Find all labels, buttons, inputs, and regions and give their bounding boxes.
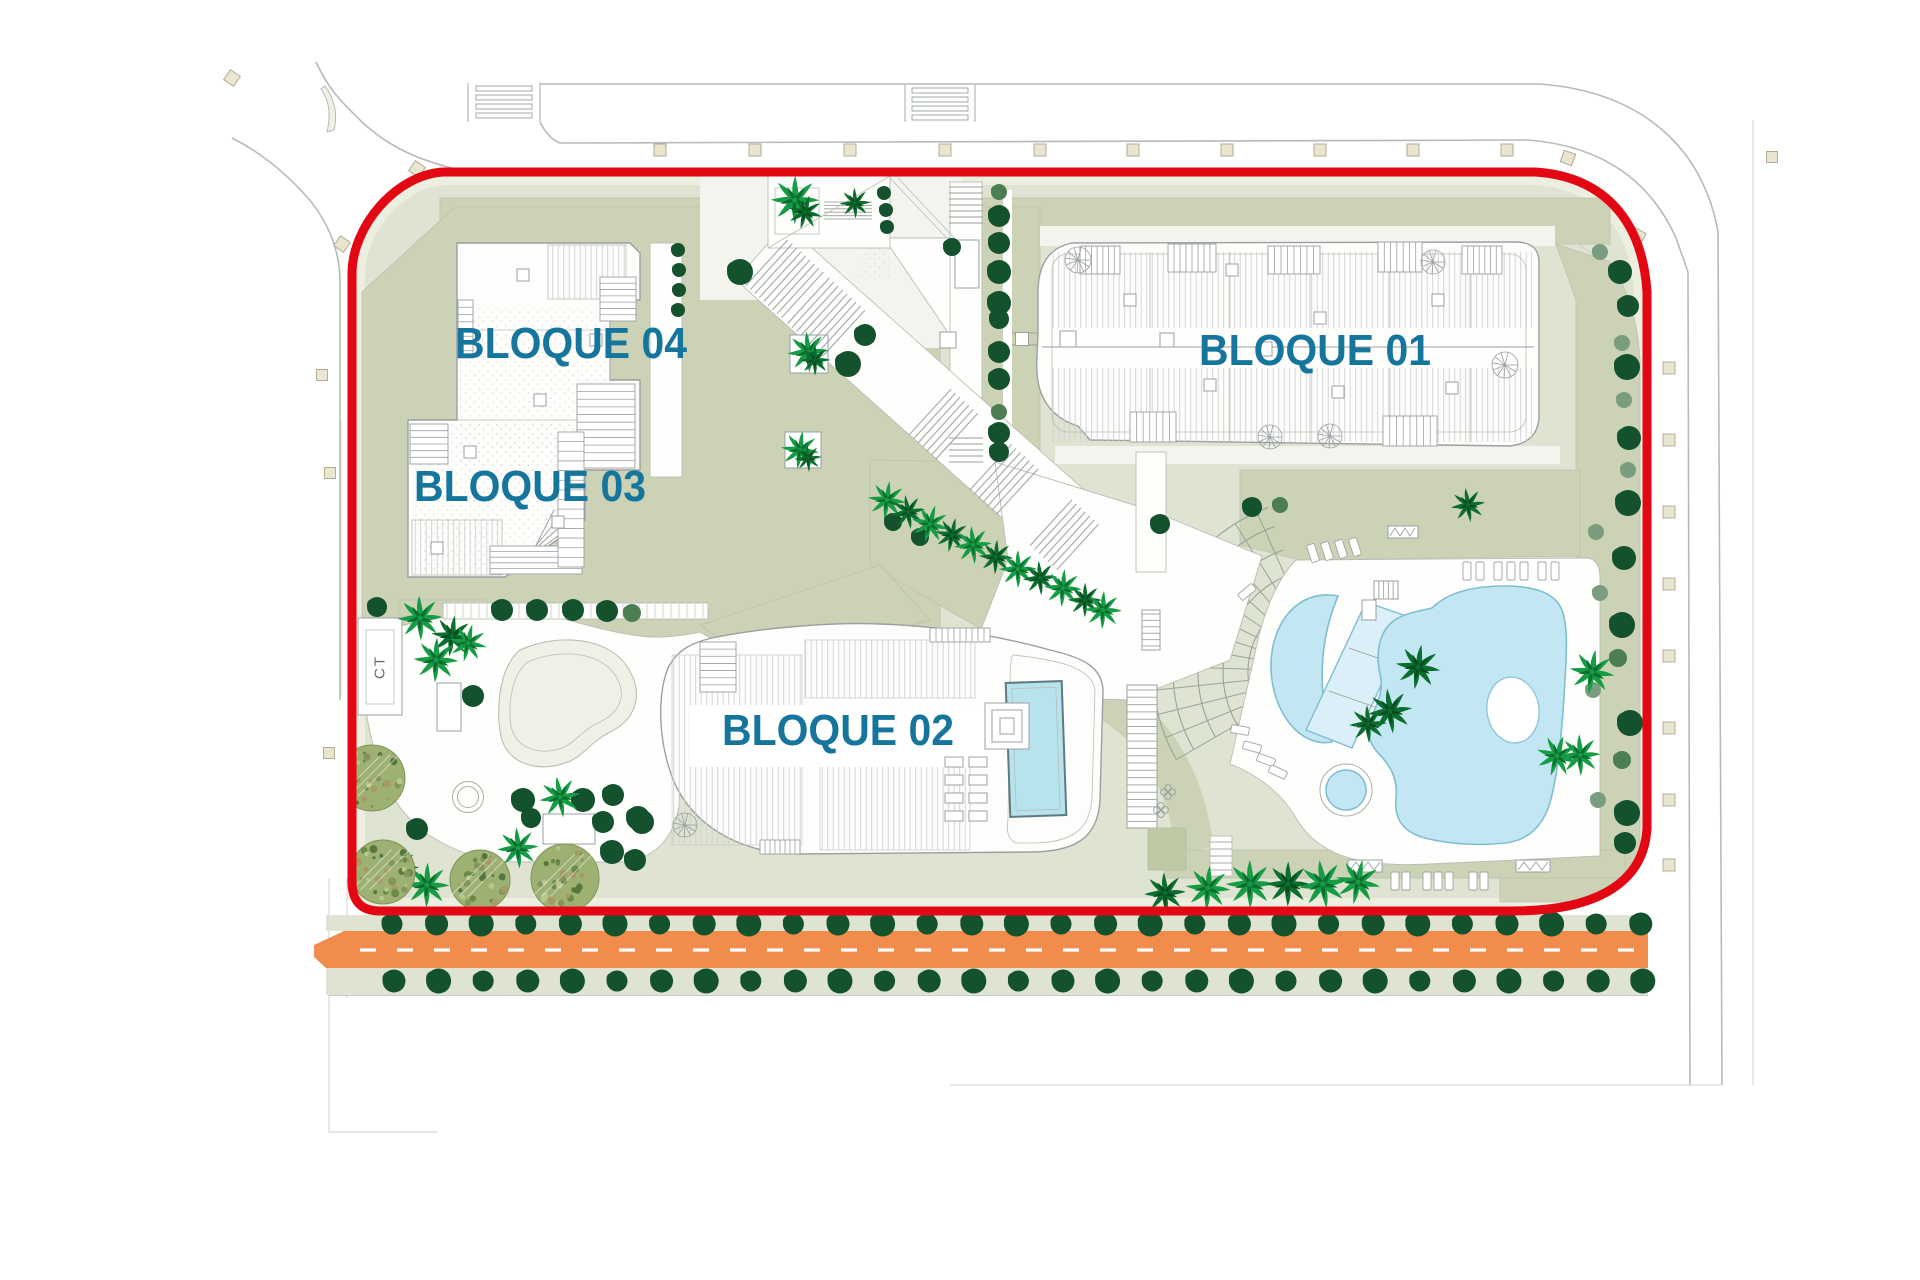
crosswalk bbox=[468, 83, 540, 122]
sun-lounger-icon bbox=[1538, 562, 1546, 580]
tree-icon bbox=[1409, 971, 1430, 992]
tree-icon bbox=[607, 971, 628, 992]
crosswalk bbox=[905, 85, 975, 122]
tree-icon bbox=[1318, 914, 1339, 935]
tree-icon bbox=[1184, 914, 1205, 935]
tree-icon bbox=[671, 303, 685, 317]
stairwell-icon bbox=[600, 277, 636, 321]
street-marker bbox=[1501, 144, 1513, 156]
tree-icon bbox=[960, 913, 983, 936]
stairwell-icon bbox=[760, 840, 800, 854]
tree-icon bbox=[1095, 969, 1120, 994]
stairwell-icon bbox=[1378, 242, 1422, 272]
street-marker bbox=[1663, 650, 1675, 662]
tree-icon bbox=[672, 263, 686, 277]
sun-lounger-icon bbox=[1423, 872, 1431, 890]
street-marker bbox=[1127, 144, 1139, 156]
tree-icon bbox=[1497, 969, 1522, 994]
tree-icon bbox=[1629, 913, 1652, 936]
street-marker bbox=[1314, 144, 1326, 156]
tree-icon bbox=[406, 818, 428, 840]
tree-icon bbox=[1272, 497, 1288, 513]
stairwell-icon bbox=[1268, 246, 1320, 274]
tree-icon bbox=[623, 604, 641, 622]
tree-icon bbox=[988, 205, 1010, 227]
tree-icon bbox=[988, 341, 1010, 363]
tree-icon bbox=[560, 969, 585, 994]
tree-icon bbox=[1586, 914, 1607, 935]
tree-icon bbox=[592, 811, 614, 833]
sun-lounger-icon bbox=[1476, 562, 1484, 580]
street-marker bbox=[1034, 144, 1046, 156]
tree-icon bbox=[602, 784, 624, 806]
tree-icon bbox=[1150, 514, 1170, 534]
tree-icon bbox=[515, 914, 536, 935]
tree-icon bbox=[828, 969, 853, 994]
tree-icon bbox=[1609, 612, 1635, 638]
tree-icon bbox=[1276, 971, 1297, 992]
sun-lounger-icon bbox=[1402, 872, 1410, 890]
tree-icon bbox=[988, 368, 1010, 390]
tree-icon bbox=[879, 203, 893, 217]
tree-icon bbox=[521, 808, 541, 828]
tree-icon bbox=[988, 232, 1010, 254]
street-marker bbox=[1663, 722, 1675, 734]
tree-icon bbox=[835, 351, 861, 377]
tree-icon bbox=[1452, 914, 1473, 935]
street-marker bbox=[1663, 434, 1675, 446]
stairwell-icon bbox=[577, 384, 635, 468]
stairwell-icon bbox=[1130, 412, 1176, 442]
tree-icon bbox=[1539, 912, 1564, 937]
tree-icon bbox=[1613, 751, 1631, 769]
tree-icon bbox=[1609, 649, 1627, 667]
tree-icon bbox=[1585, 682, 1601, 698]
street-marker bbox=[325, 468, 336, 479]
label-bloque-03: BLOQUE 03 bbox=[414, 462, 646, 512]
tree-icon bbox=[383, 970, 406, 993]
site-plan-drawing bbox=[0, 0, 1920, 1280]
tree-icon bbox=[382, 914, 403, 935]
tree-icon bbox=[526, 599, 548, 621]
tree-icon bbox=[559, 913, 582, 936]
tree-icon bbox=[473, 971, 494, 992]
tree-icon bbox=[874, 971, 895, 992]
tree-icon bbox=[961, 969, 986, 994]
label-bloque-02: BLOQUE 02 bbox=[722, 706, 954, 756]
tree-icon bbox=[426, 969, 451, 994]
street-marker bbox=[654, 144, 666, 156]
street-marker bbox=[1560, 150, 1575, 165]
bush-tree-icon bbox=[531, 844, 599, 912]
tree-icon bbox=[1592, 585, 1608, 601]
tree-icon bbox=[880, 220, 894, 234]
street-marker bbox=[1663, 794, 1675, 806]
tree-icon bbox=[1185, 970, 1208, 993]
bush-tree-icon bbox=[351, 840, 415, 904]
tree-icon bbox=[367, 597, 387, 617]
tree-icon bbox=[1496, 913, 1519, 936]
street-marker bbox=[939, 144, 951, 156]
street-marker bbox=[1767, 152, 1778, 163]
tree-icon bbox=[600, 840, 624, 864]
street-marker bbox=[1407, 144, 1419, 156]
street-marker bbox=[1663, 578, 1675, 590]
tree-icon bbox=[694, 969, 719, 994]
tree-icon bbox=[784, 970, 807, 993]
street-marker bbox=[1663, 859, 1675, 871]
street-marker bbox=[749, 144, 761, 156]
tree-icon bbox=[1242, 497, 1262, 517]
tree-icon bbox=[1008, 971, 1029, 992]
palm-tree-icon bbox=[799, 344, 830, 375]
label-bloque-04: BLOQUE 04 bbox=[455, 319, 687, 369]
tree-icon bbox=[624, 849, 646, 871]
sun-lounger-icon bbox=[1469, 872, 1477, 890]
tree-icon bbox=[989, 309, 1009, 329]
tree-icon bbox=[1052, 970, 1075, 993]
stairwell-icon bbox=[700, 642, 736, 692]
tree-icon bbox=[1142, 971, 1163, 992]
tree-icon bbox=[1620, 462, 1636, 478]
tree-icon bbox=[877, 186, 891, 200]
tree-icon bbox=[991, 184, 1007, 200]
tree-icon bbox=[1617, 295, 1639, 317]
tree-icon bbox=[1588, 524, 1604, 540]
stairwell-icon bbox=[410, 424, 448, 464]
street-marker bbox=[317, 370, 328, 381]
tree-icon bbox=[1614, 800, 1640, 826]
tree-icon bbox=[1617, 710, 1643, 736]
tree-icon bbox=[1617, 426, 1641, 450]
tree-icon bbox=[1590, 792, 1606, 808]
tree-icon bbox=[1616, 392, 1632, 408]
tree-icon bbox=[1592, 244, 1608, 260]
street-marker bbox=[1221, 144, 1233, 156]
ct-utility-label: CT bbox=[372, 655, 389, 679]
stairwell-icon bbox=[1168, 244, 1216, 272]
sun-lounger-icon bbox=[1445, 872, 1453, 890]
tree-icon bbox=[649, 914, 670, 935]
stairwell-icon bbox=[1383, 416, 1437, 446]
tree-icon bbox=[854, 324, 876, 346]
spa-pool bbox=[1326, 770, 1366, 810]
tree-icon bbox=[1543, 971, 1564, 992]
tree-icon bbox=[1051, 914, 1072, 935]
sun-lounger-icon bbox=[1551, 562, 1559, 580]
tree-icon bbox=[943, 238, 961, 256]
sun-lounger-icon bbox=[1507, 562, 1515, 580]
tree-icon bbox=[740, 971, 761, 992]
tree-icon bbox=[1229, 969, 1254, 994]
tree-icon bbox=[1630, 969, 1655, 994]
street-marker bbox=[224, 70, 241, 87]
stairwell-icon bbox=[1462, 246, 1502, 274]
street-marker bbox=[324, 748, 335, 759]
tree-icon bbox=[827, 913, 850, 936]
tree-icon bbox=[1614, 354, 1640, 380]
tree-icon bbox=[596, 600, 618, 622]
tree-icon bbox=[1453, 970, 1476, 993]
sun-lounger-icon bbox=[1391, 872, 1399, 890]
tree-icon bbox=[562, 599, 584, 621]
tree-icon bbox=[462, 685, 484, 707]
tree-icon bbox=[571, 788, 595, 812]
stairwell-icon bbox=[930, 628, 990, 642]
tree-icon bbox=[650, 970, 673, 993]
tree-icon bbox=[783, 914, 804, 935]
tree-icon bbox=[1608, 260, 1632, 284]
tree-icon bbox=[1319, 970, 1342, 993]
tree-icon bbox=[693, 913, 716, 936]
bush-tree-icon bbox=[450, 850, 510, 910]
tree-icon bbox=[626, 806, 650, 830]
tree-icon bbox=[1362, 913, 1385, 936]
tree-icon bbox=[516, 970, 539, 993]
tree-icon bbox=[989, 442, 1009, 462]
tree-icon bbox=[987, 260, 1011, 284]
tree-icon bbox=[672, 283, 686, 297]
sun-lounger-icon bbox=[1434, 872, 1442, 890]
label-bloque-01: BLOQUE 01 bbox=[1199, 326, 1431, 376]
tree-icon bbox=[917, 914, 938, 935]
tree-icon bbox=[425, 913, 448, 936]
sun-lounger-icon bbox=[1463, 562, 1471, 580]
tree-icon bbox=[988, 422, 1010, 444]
tree-icon bbox=[991, 404, 1007, 420]
tree-icon bbox=[1614, 335, 1630, 351]
tree-icon bbox=[1228, 913, 1251, 936]
tree-icon bbox=[727, 259, 753, 285]
tree-icon bbox=[491, 599, 513, 621]
street-marker bbox=[1663, 362, 1675, 374]
sun-lounger-icon bbox=[1480, 872, 1488, 890]
site-plan-page: BLOQUE 04 BLOQUE 03 BLOQUE 01 BLOQUE 02 … bbox=[0, 0, 1920, 1280]
sun-lounger-icon bbox=[1520, 562, 1528, 580]
tree-icon bbox=[1094, 913, 1117, 936]
access-road bbox=[314, 912, 1655, 996]
tree-icon bbox=[1615, 490, 1641, 516]
tree-icon bbox=[1614, 832, 1636, 854]
palm-tree-icon bbox=[999, 550, 1037, 588]
tree-icon bbox=[1612, 546, 1636, 570]
street-marker bbox=[844, 144, 856, 156]
tree-icon bbox=[1587, 970, 1610, 993]
sun-lounger-icon bbox=[1494, 562, 1502, 580]
street-marker bbox=[1663, 506, 1675, 518]
tree-icon bbox=[671, 243, 685, 257]
tree-icon bbox=[918, 970, 941, 993]
tree-icon bbox=[1363, 969, 1388, 994]
